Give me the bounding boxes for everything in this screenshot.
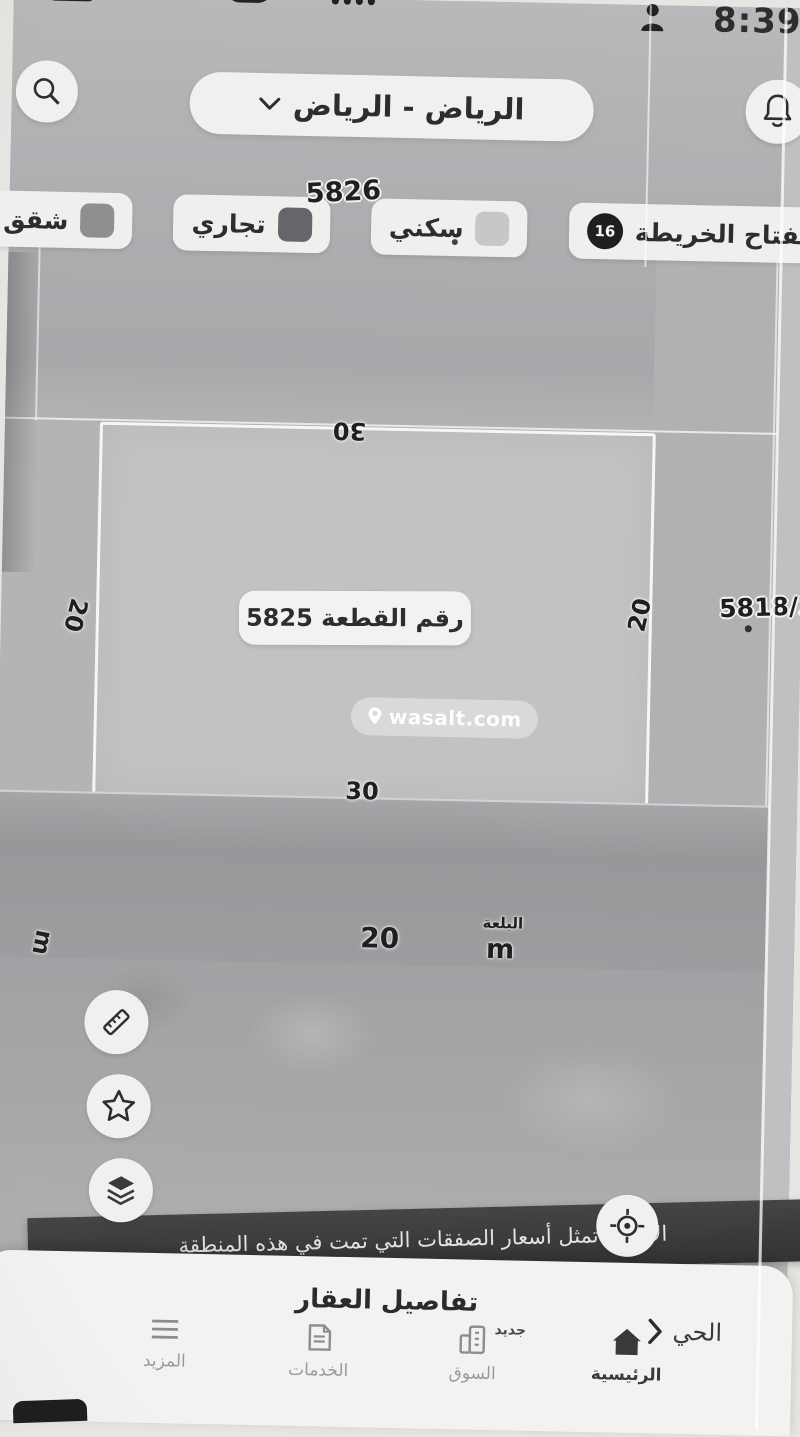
street-name-label: البلعة xyxy=(483,914,524,933)
bottom-sheet: تفاصيل العقار الحي الرئيسية جديد xyxy=(0,1249,794,1436)
chip-map-key[interactable]: مفتاح الخريطة 16 xyxy=(569,202,800,264)
map-neighbor-strip[interactable] xyxy=(646,255,782,812)
street-unit-left-label: m xyxy=(27,928,59,958)
watermark-pill: wasalt.com xyxy=(351,697,539,739)
street-unit-label: m xyxy=(487,934,516,966)
nav-label: السوق xyxy=(449,1363,496,1384)
block-number-label: 5826 xyxy=(306,175,383,210)
street-width-label: 20 xyxy=(361,921,401,955)
layers-icon xyxy=(103,1171,142,1210)
chip-commercial-label: تجاري xyxy=(192,208,267,239)
chip-apartments-label: شقق xyxy=(4,204,70,234)
commercial-color-swatch xyxy=(278,207,313,242)
nav-label: المزيد xyxy=(144,1351,187,1372)
signal-bars-icon xyxy=(333,0,340,5)
city-selector[interactable]: الرياض - الرياض xyxy=(190,71,595,141)
chip-residential-label: سكني xyxy=(390,212,465,243)
new-badge: جديد xyxy=(495,1322,527,1339)
watermark-text: wasalt.com xyxy=(390,705,523,732)
apartments-color-swatch xyxy=(81,203,116,238)
more-menu-icon xyxy=(150,1317,183,1344)
chip-apartments[interactable]: شقق xyxy=(0,190,134,249)
price-notice-text: الأسعار تمثل أسعار الصفقات التي تمت في ه… xyxy=(179,1222,668,1258)
market-icon xyxy=(457,1323,492,1356)
nav-label: الرئيسية xyxy=(592,1364,663,1385)
signal-bars-icon xyxy=(345,0,352,5)
nav-item-services[interactable]: الخدمات xyxy=(273,1320,365,1422)
photo-background-corner xyxy=(14,1399,89,1424)
photo-shadow xyxy=(3,252,44,573)
signal-bars-icon xyxy=(369,0,376,5)
profile-status-icon xyxy=(640,3,667,32)
signal-bars-icon xyxy=(357,0,364,5)
bottom-nav: الرئيسية جديد السوق xyxy=(0,1313,793,1430)
chevron-down-icon xyxy=(260,97,282,111)
parcel-dim-bottom: 30 xyxy=(346,777,380,806)
map-pin-icon xyxy=(368,706,384,726)
battery-icon xyxy=(51,0,95,1)
star-icon xyxy=(100,1087,139,1126)
map-dot xyxy=(453,239,459,245)
nav-item-home[interactable]: الرئيسية xyxy=(581,1326,673,1428)
home-icon xyxy=(612,1327,645,1358)
parcel-number-text: رقم القطعة 5825 xyxy=(247,604,465,633)
nav-item-market[interactable]: جديد السوق xyxy=(427,1323,519,1425)
city-selector-label: الرياض - الرياض xyxy=(294,88,526,127)
ruler-icon xyxy=(99,1004,136,1041)
search-icon xyxy=(31,74,66,109)
chip-map-key-label: مفتاح الخريطة xyxy=(636,217,800,250)
bell-icon xyxy=(760,91,797,132)
target-icon xyxy=(608,1205,649,1246)
adjacent-parcel-label: 5818/2 xyxy=(720,591,800,623)
map-key-count-badge: 16 xyxy=(588,213,625,250)
parcel-number-pill[interactable]: رقم القطعة 5825 xyxy=(240,591,472,646)
wasalt-map-screen: 5826 5818/2 30 30 20 20 رقم القطعة 5825 … xyxy=(0,0,800,1430)
residential-color-swatch xyxy=(476,212,511,247)
nav-label: الخدمات xyxy=(289,1360,349,1381)
chip-residential[interactable]: سكني xyxy=(371,198,529,257)
parcel-dim-left: 20 xyxy=(59,596,94,635)
wifi-icon xyxy=(227,0,273,3)
nav-item-more[interactable]: المزيد xyxy=(119,1316,211,1418)
parcel-dim-top: 30 xyxy=(334,417,368,446)
services-document-icon xyxy=(304,1320,337,1353)
